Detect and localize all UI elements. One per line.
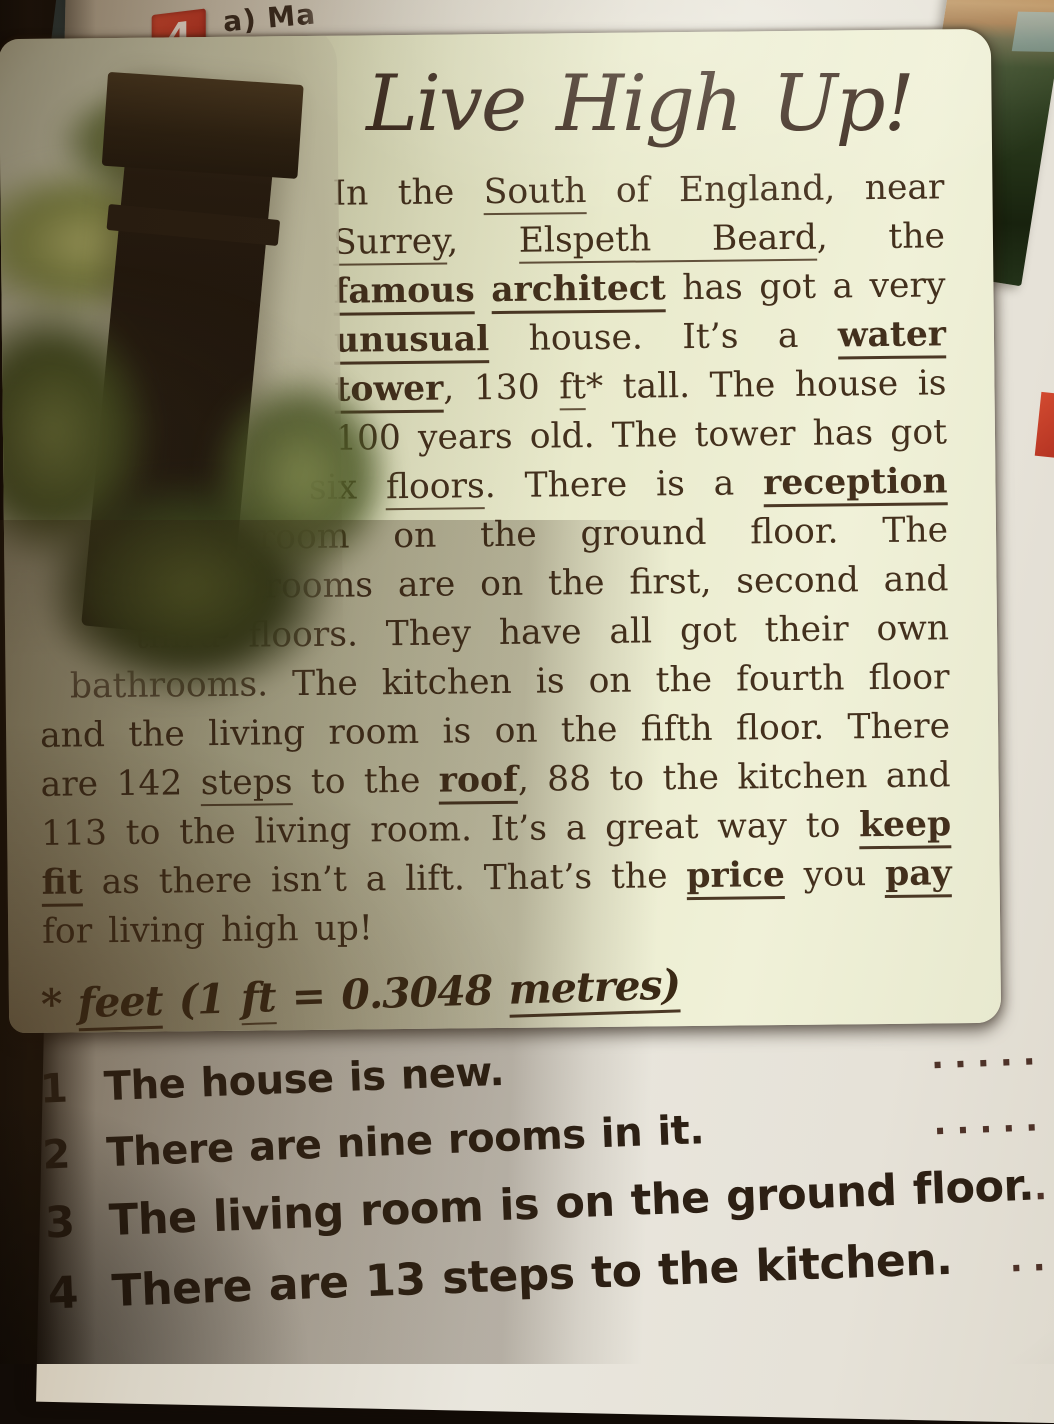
question-number: 2 [42,1130,108,1178]
photographed-textbook-page: 4 a) Ma (false). Live High Up! In the So… [0,0,1054,1364]
footnote: * feet (1 ft = 0.3048 metres) [40,951,963,1028]
answer-dots: ..... [1033,1164,1054,1208]
foliage-blob [204,369,396,581]
answer-dots: ..... [933,1099,1049,1143]
question-text: There are 13 steps to the kitchen. [111,1234,953,1317]
true-false-questions: 1 The house is new. ..... 2 There are ni… [0,1028,1054,1341]
answer-dots: ..... [930,1033,1046,1077]
article-title: Live High Up! [34,62,948,148]
instruction-line-a: a) Ma [222,0,349,39]
question-number: 4 [47,1266,113,1319]
question-text: There are nine rooms in it. [106,1107,705,1176]
question-text: The living room is on the ground floor. [108,1161,1035,1246]
answer-dots: .... [1009,1237,1054,1280]
question-number: 3 [44,1196,110,1248]
reading-card: Live High Up! In the South of England, n… [0,29,1001,1033]
question-number: 1 [39,1064,105,1112]
